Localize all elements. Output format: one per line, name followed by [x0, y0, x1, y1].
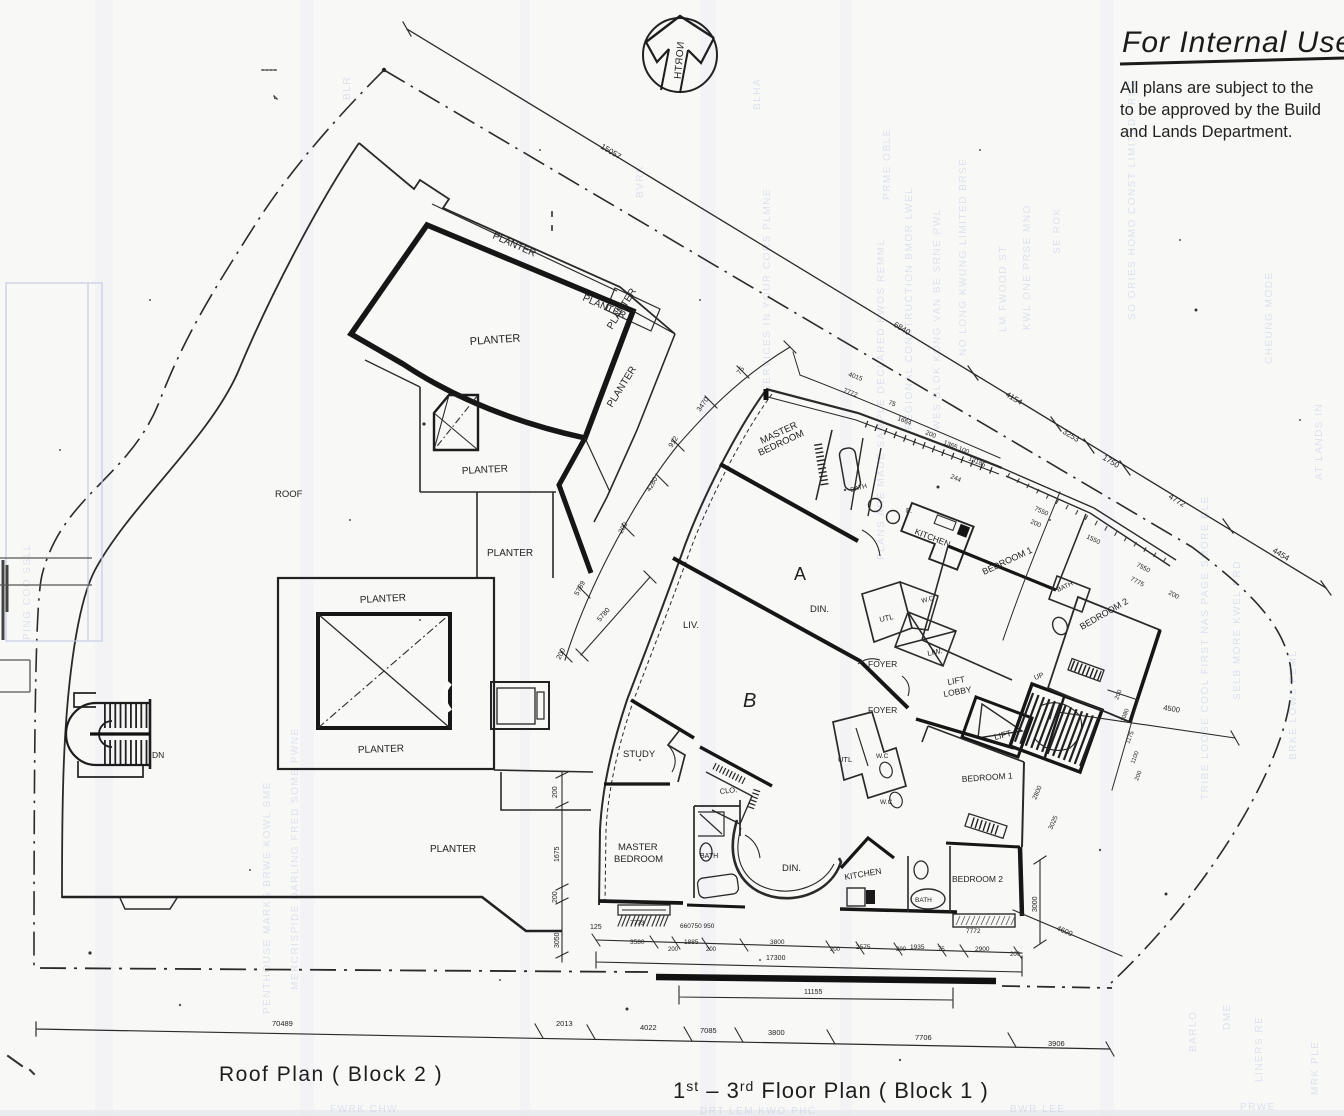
svg-text:BLR: BLR — [342, 76, 353, 100]
svg-text:200: 200 — [552, 891, 559, 903]
svg-text:3580: 3580 — [630, 939, 645, 946]
svg-text:3800: 3800 — [768, 1028, 785, 1037]
svg-text:UTL: UTL — [838, 755, 852, 764]
svg-text:MRK PLE: MRK PLE — [1310, 1041, 1321, 1095]
svg-text:DN: DN — [152, 750, 164, 760]
svg-text:2575: 2575 — [856, 944, 871, 951]
svg-text:A: A — [794, 564, 806, 584]
svg-text:BEDROOM: BEDROOM — [614, 854, 663, 865]
svg-text:PRWE: PRWE — [1240, 1102, 1276, 1113]
svg-text:MERCRISPIDE DARLING FRED SOME: MERCRISPIDE DARLING FRED SOME PWNE — [290, 727, 301, 990]
svg-text:REGIONAL CONSTRUCTION BMOR LWE: REGIONAL CONSTRUCTION BMOR LWEL — [904, 187, 915, 430]
svg-text:AT LANDS IN: AT LANDS IN — [1314, 403, 1325, 480]
svg-text:TRIBE LOOSE COOL FIRST NAS PAG: TRIBE LOOSE COOL FIRST NAS PAGE SMORE BL… — [1200, 495, 1211, 800]
svg-text:LM FWOOD ST: LM FWOOD ST — [998, 245, 1009, 332]
svg-text:W.C: W.C — [876, 753, 889, 760]
svg-text:7772: 7772 — [966, 928, 981, 935]
svg-text:1885: 1885 — [684, 939, 699, 946]
svg-text:KWL ONE PRSE MNO: KWL ONE PRSE MNO — [1022, 204, 1033, 330]
svg-text:3800: 3800 — [770, 939, 785, 946]
svg-text:3000: 3000 — [1032, 896, 1039, 912]
svg-text:to be approved by the Build: to be approved by the Build — [1120, 101, 1321, 119]
svg-text:BLHA: BLHA — [752, 78, 763, 110]
svg-text:DIN.: DIN. — [810, 604, 829, 615]
svg-text:17300: 17300 — [766, 955, 786, 962]
svg-text:4022: 4022 — [640, 1023, 657, 1032]
svg-text:BEDROOM 2: BEDROOM 2 — [952, 874, 1003, 884]
svg-text:All plans are subject to the: All plans are subject to the — [1120, 79, 1314, 97]
svg-text:MASTER: MASTER — [618, 842, 658, 853]
svg-text:DME: DME — [1222, 1003, 1233, 1030]
svg-text:BVRK: BVRK — [635, 165, 646, 198]
svg-text:2013: 2013 — [556, 1019, 573, 1028]
svg-text:7085: 7085 — [700, 1026, 717, 1035]
svg-text:CHEUNG MODE: CHEUNG MODE — [1264, 271, 1275, 364]
svg-text:and Lands Department.: and Lands Department. — [1120, 123, 1292, 141]
svg-text:DIN.: DIN. — [782, 863, 801, 874]
svg-text:PRME OBLE: PRME OBLE — [882, 128, 893, 200]
svg-text:Roof Plan ( Block 2 ): Roof Plan ( Block 2 ) — [219, 1063, 443, 1086]
svg-text:WES BLOK KONG VAN BE SRNE PWL: WES BLOK KONG VAN BE SRNE PWL — [932, 208, 943, 430]
svg-text:B: B — [743, 690, 756, 712]
svg-text:200: 200 — [552, 786, 559, 798]
svg-text:70489: 70489 — [272, 1019, 293, 1028]
svg-text:BARLO: BARLO — [1188, 1011, 1199, 1052]
svg-text:11155: 11155 — [804, 989, 823, 996]
svg-text:3050: 3050 — [554, 932, 561, 948]
svg-text:200: 200 — [706, 947, 717, 953]
svg-text:7773: 7773 — [630, 920, 645, 927]
svg-text:FOYER: FOYER — [868, 659, 897, 669]
svg-text:1st – 3rd Floor Plan ( Block 1: 1st – 3rd Floor Plan ( Block 1 ) — [673, 1078, 989, 1103]
svg-text:PLANTER: PLANTER — [430, 844, 476, 855]
svg-text:PLANS ARE MADE SAMPLE DECLARED: PLANS ARE MADE SAMPLE DECLARED KWOS REMM… — [876, 238, 887, 560]
svg-text:BWR LEE: BWR LEE — [1010, 1104, 1066, 1115]
svg-text:PLANTER: PLANTER — [487, 548, 533, 559]
svg-text:SE ROK: SE ROK — [1052, 207, 1063, 254]
svg-text:200: 200 — [1010, 952, 1021, 958]
svg-text:BATH: BATH — [700, 853, 718, 860]
svg-text:75: 75 — [938, 947, 945, 953]
svg-text:200: 200 — [668, 947, 679, 953]
svg-text:DRT LEM KWO PHC: DRT LEM KWO PHC — [700, 1106, 817, 1116]
svg-text:For Internal Use: For Internal Use — [1122, 26, 1344, 59]
svg-text:NO LONG KWUNG LIMITED BRSE: NO LONG KWUNG LIMITED BRSE — [958, 158, 969, 356]
svg-text:LINERS RE: LINERS RE — [1254, 1016, 1265, 1082]
svg-text:1935: 1935 — [910, 944, 925, 951]
svg-text:BATH: BATH — [915, 897, 932, 904]
svg-text:1675: 1675 — [554, 846, 561, 862]
svg-text:LIV.: LIV. — [683, 620, 699, 631]
svg-text:FWRK CHW: FWRK CHW — [330, 1104, 398, 1115]
svg-text:200: 200 — [830, 947, 841, 953]
svg-text:200: 200 — [896, 947, 907, 953]
svg-text:7706: 7706 — [915, 1033, 932, 1042]
svg-text:PLANTER: PLANTER — [358, 743, 404, 756]
svg-text:2900: 2900 — [975, 946, 990, 953]
svg-text:125: 125 — [590, 924, 602, 931]
svg-text:660750 950: 660750 950 — [680, 923, 715, 930]
svg-text:CLO.: CLO. — [719, 785, 737, 796]
svg-text:3906: 3906 — [1048, 1039, 1065, 1048]
svg-text:ROOF: ROOF — [275, 489, 303, 500]
svg-text:STUDY: STUDY — [623, 749, 656, 760]
